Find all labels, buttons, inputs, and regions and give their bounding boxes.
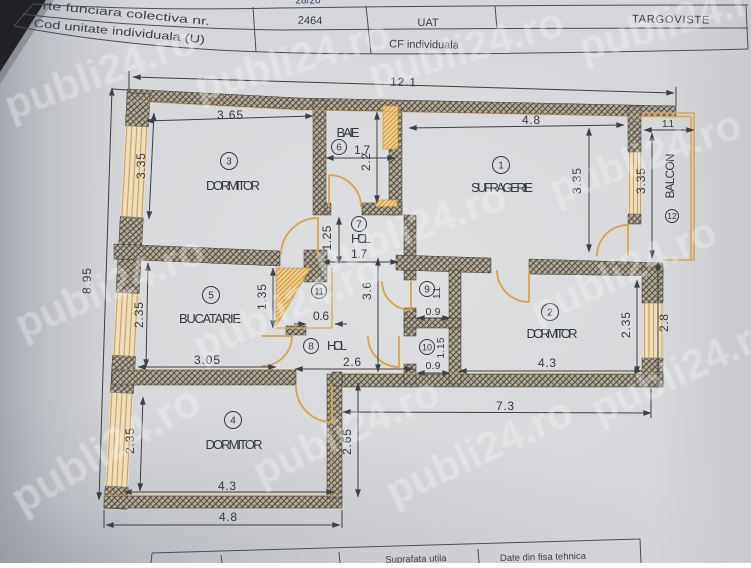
svg-text:28/20: 28/20 [295,0,320,7]
svg-text:8: 8 [308,342,314,353]
svg-text:4.8: 4.8 [522,113,540,127]
svg-text:2.8: 2.8 [657,314,671,332]
svg-text:UAT: UAT [417,17,439,29]
svg-text:BAIE: BAIE [337,125,360,140]
svg-text:4.8: 4.8 [219,510,237,524]
svg-text:10: 10 [422,343,432,353]
svg-text:Suprafata utila: Suprafata utila [385,553,447,563]
svg-text:6: 6 [336,143,342,154]
svg-text:4.3: 4.3 [218,479,236,493]
svg-text:4.3: 4.3 [538,356,556,370]
svg-text:1: 1 [498,161,504,172]
svg-text:4: 4 [230,416,236,427]
svg-text:3: 3 [226,157,232,168]
svg-text:0.9: 0.9 [426,306,441,318]
svg-text:9: 9 [424,285,430,296]
svg-text:1.15: 1.15 [436,337,447,358]
svg-text:2.35: 2.35 [132,302,146,328]
svg-text:Date din fisa tehnica: Date din fisa tehnica [500,551,587,563]
svg-text:3.65: 3.65 [217,108,243,122]
svg-text:3.35: 3.35 [134,153,148,179]
svg-text:5: 5 [208,291,214,302]
svg-text:1.7: 1.7 [354,143,370,157]
svg-text:HOL: HOL [327,338,347,353]
svg-text:2.35: 2.35 [619,312,633,338]
svg-text:DORMITOR: DORMITOR [206,178,260,193]
svg-text:2.6: 2.6 [343,355,361,369]
svg-text:2464: 2464 [298,15,323,28]
